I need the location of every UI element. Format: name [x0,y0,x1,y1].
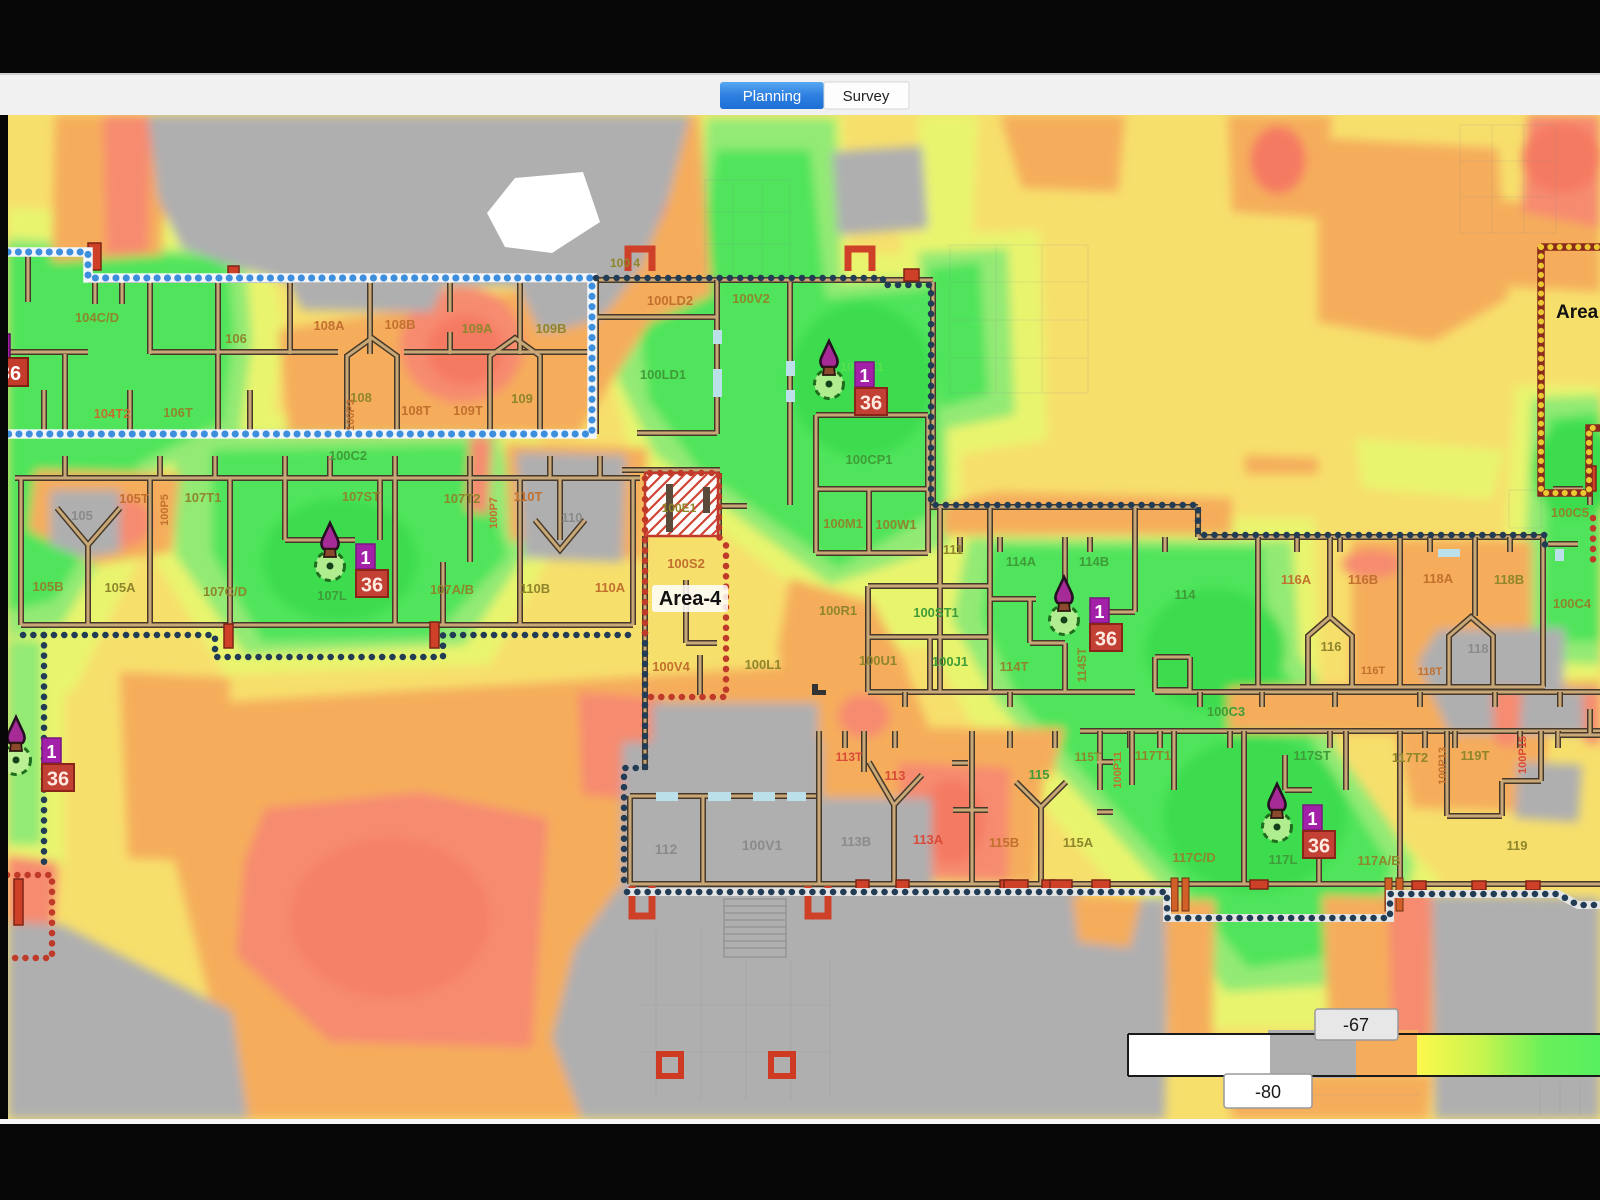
svg-text:Area: Area [1556,302,1599,323]
svg-text:105A: 105A [104,580,136,595]
svg-text:-67: -67 [1343,1015,1369,1035]
svg-text:104T2: 104T2 [94,406,131,421]
svg-text:109: 109 [511,391,533,406]
svg-text:100P5: 100P5 [159,494,171,526]
svg-text:109B: 109B [535,321,566,336]
svg-text:114ST: 114ST [1075,647,1089,682]
svg-text:100S2: 100S2 [667,556,705,571]
svg-text:114T: 114T [1000,659,1029,674]
svg-text:1: 1 [859,366,869,386]
svg-text:119: 119 [1507,838,1528,853]
svg-text:100V2: 100V2 [732,291,770,306]
svg-text:100P11: 100P11 [1112,751,1124,788]
svg-text:36: 36 [47,769,69,791]
svg-text:112: 112 [655,841,678,857]
svg-text:100E1: 100E1 [662,501,697,515]
svg-text:109A: 109A [461,321,493,336]
svg-text:113B: 113B [841,834,871,849]
svg-text:105B: 105B [32,579,63,594]
svg-text:116A: 116A [1281,572,1312,587]
svg-text:110A: 110A [595,580,626,595]
svg-text:108T: 108T [401,403,431,418]
svg-text:105T: 105T [119,491,149,506]
svg-text:1: 1 [1094,602,1104,622]
svg-text:116: 116 [1321,639,1342,654]
svg-text:36: 36 [361,575,383,597]
svg-text:36: 36 [1095,629,1117,651]
svg-text:108B: 108B [384,317,415,332]
svg-text:100C4: 100C4 [1553,596,1592,611]
svg-text:100C3: 100C3 [1207,704,1245,719]
svg-text:Survey: Survey [843,88,890,105]
svg-text:100LD1: 100LD1 [640,367,686,382]
svg-text:107ST: 107ST [342,489,380,504]
svg-text:110T: 110T [514,489,543,504]
svg-text:117L: 117L [1269,852,1298,867]
svg-text:100P7: 100P7 [488,497,500,529]
svg-text:116B: 116B [1348,572,1378,587]
svg-text:100R1: 100R1 [819,603,857,618]
svg-text:100C2: 100C2 [329,448,367,463]
svg-text:115: 115 [1029,767,1050,782]
svg-text:107A/B: 107A/B [430,582,474,597]
svg-text:117A/B: 117A/B [1357,853,1400,868]
svg-text:110B: 110B [520,581,550,596]
svg-text:118A: 118A [1423,571,1454,586]
svg-text:1: 1 [1307,809,1317,829]
svg-text:104C/D: 104C/D [75,310,119,325]
svg-text:100C5: 100C5 [1551,505,1589,520]
svg-text:100W1: 100W1 [875,517,916,532]
svg-text:100P13: 100P13 [1437,747,1449,785]
svg-text:118T: 118T [1418,666,1443,678]
svg-text:100M1: 100M1 [823,516,863,531]
svg-text:100P15: 100P15 [1517,736,1529,774]
svg-text:107L: 107L [317,588,347,603]
svg-text:118B: 118B [1494,572,1524,587]
svg-text:108A: 108A [313,318,345,333]
svg-text:117T1: 117T1 [1135,748,1171,763]
svg-text:100CP1: 100CP1 [846,452,893,467]
svg-text:113T: 113T [836,750,863,764]
svg-text:100U1: 100U1 [859,653,897,668]
svg-text:106T: 106T [163,405,193,420]
svg-text:114A: 114A [1006,554,1037,569]
svg-text:118: 118 [1468,641,1489,656]
svg-text:Area-4: Area-4 [659,588,722,610]
svg-text:107T2: 107T2 [444,491,481,506]
svg-text:100V4: 100V4 [652,659,690,674]
svg-text:107T1: 107T1 [185,490,222,505]
svg-text:106: 106 [225,331,247,346]
svg-text:119T: 119T [1461,748,1490,763]
svg-text:100 4: 100 4 [610,256,640,270]
svg-text:113A: 113A [913,832,944,847]
svg-text:105: 105 [71,508,93,523]
svg-text:100LD2: 100LD2 [647,293,693,308]
svg-text:100V1: 100V1 [742,837,783,853]
svg-text:100P3: 100P3 [345,399,357,431]
svg-text:117T2: 117T2 [1392,750,1428,765]
svg-text:-80: -80 [1255,1082,1281,1102]
svg-text:115B: 115B [989,835,1019,850]
svg-text:36: 36 [1308,836,1330,858]
svg-text:117C/D: 117C/D [1172,850,1215,865]
svg-text:116T: 116T [1361,665,1386,677]
svg-text:107C/D: 107C/D [203,584,247,599]
svg-text:114B: 114B [1079,554,1109,569]
svg-text:114: 114 [1175,587,1197,602]
svg-text:36: 36 [860,393,882,415]
svg-text:1: 1 [46,742,56,762]
svg-text:110: 110 [562,510,583,525]
svg-text:115A: 115A [1063,835,1094,850]
svg-text:111: 111 [943,542,963,557]
svg-text:117ST: 117ST [1293,748,1331,763]
svg-text:100ST1: 100ST1 [913,605,959,620]
svg-text:100L1: 100L1 [745,657,782,672]
svg-text:100J1: 100J1 [932,654,968,669]
svg-text:Planning: Planning [743,88,801,105]
svg-text:109T: 109T [453,403,483,418]
svg-text:115T: 115T [1075,750,1102,764]
svg-text:1: 1 [360,548,370,568]
svg-text:113: 113 [885,768,906,783]
